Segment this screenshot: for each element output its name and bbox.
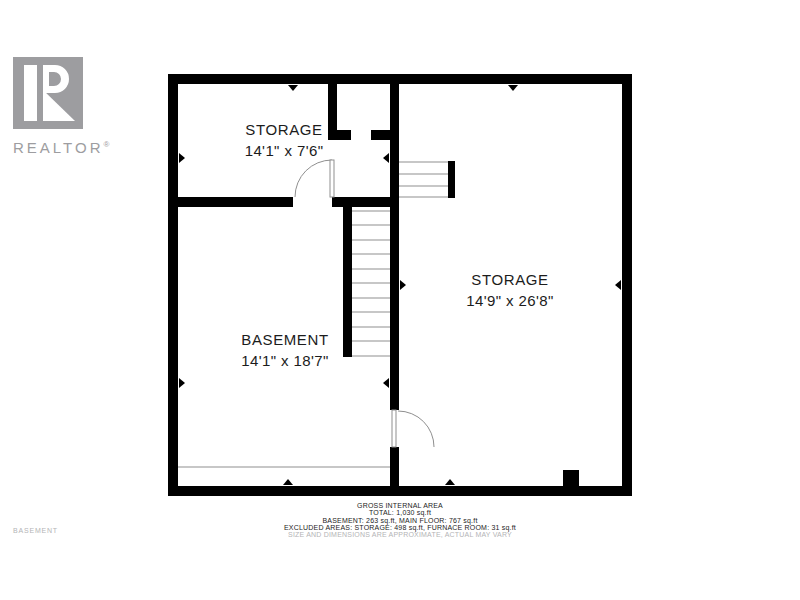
- excluded-areas: EXCLUDED AREAS: STORAGE: 498 sq.ft, FURN…: [0, 524, 800, 531]
- disclaimer: SIZE AND DIMENSIONS ARE APPROXIMATE, ACT…: [0, 531, 800, 538]
- room-dims: 14'1" x 18'7": [241, 350, 328, 371]
- wall-divider-right: [332, 197, 390, 207]
- door-leaf: [392, 410, 396, 447]
- tick-mark: [179, 153, 185, 163]
- tick-mark: [383, 153, 389, 163]
- stair-end-cap: [448, 161, 455, 198]
- door-arc: [295, 160, 332, 197]
- room-dims: 14'1" x 7'6": [245, 140, 324, 161]
- room-label-storage-left: STORAGE 14'1" x 7'6": [245, 119, 324, 161]
- room-name: STORAGE: [466, 269, 553, 290]
- wall-divider-left: [178, 197, 293, 207]
- area-summary: GROSS INTERNAL AREA TOTAL: 1,030 sq.ft B…: [0, 502, 800, 538]
- tick-mark: [383, 378, 389, 388]
- wall-center-lower: [390, 447, 399, 486]
- stairs-upper-run: [399, 161, 455, 198]
- tick-mark: [445, 479, 455, 485]
- wall-right: [622, 74, 632, 496]
- tick-mark: [283, 479, 293, 485]
- floor-label: BASEMENT: [13, 527, 58, 534]
- wall-bottom: [168, 486, 632, 496]
- door-arc: [398, 411, 434, 447]
- room-name: STORAGE: [245, 119, 324, 140]
- wall-top: [168, 74, 632, 84]
- wall-left: [168, 74, 178, 496]
- room-label-storage-right: STORAGE 14'9" x 26'8": [466, 269, 553, 311]
- total-area: TOTAL: 1,030 sq.ft: [0, 509, 800, 516]
- room-dims: 14'9" x 26'8": [466, 290, 553, 311]
- chimney-stub-vertical: [328, 84, 337, 140]
- door-storage-right: [392, 410, 434, 447]
- chimney-flange-left: [337, 130, 351, 140]
- room-name: BASEMENT: [241, 329, 328, 350]
- floor-areas: BASEMENT: 263 sq.ft, MAIN FLOOR: 767 sq.…: [0, 517, 800, 524]
- tick-mark: [615, 280, 621, 290]
- stair-side-wall: [343, 197, 352, 357]
- chimney-flange-right: [371, 130, 390, 140]
- gross-internal-area-label: GROSS INTERNAL AREA: [0, 502, 800, 509]
- furnace-block: [563, 470, 579, 486]
- stairs-main-run: [352, 211, 390, 356]
- door-storage-left: [295, 160, 334, 197]
- tick-mark: [508, 85, 518, 91]
- floorplan-page: REALTOR®: [0, 0, 800, 600]
- wall-center-upper: [390, 84, 399, 410]
- room-label-basement: BASEMENT 14'1" x 18'7": [241, 329, 328, 371]
- tick-mark: [179, 378, 185, 388]
- tick-mark: [400, 280, 406, 290]
- door-leaf: [330, 160, 334, 197]
- tick-mark: [288, 85, 298, 91]
